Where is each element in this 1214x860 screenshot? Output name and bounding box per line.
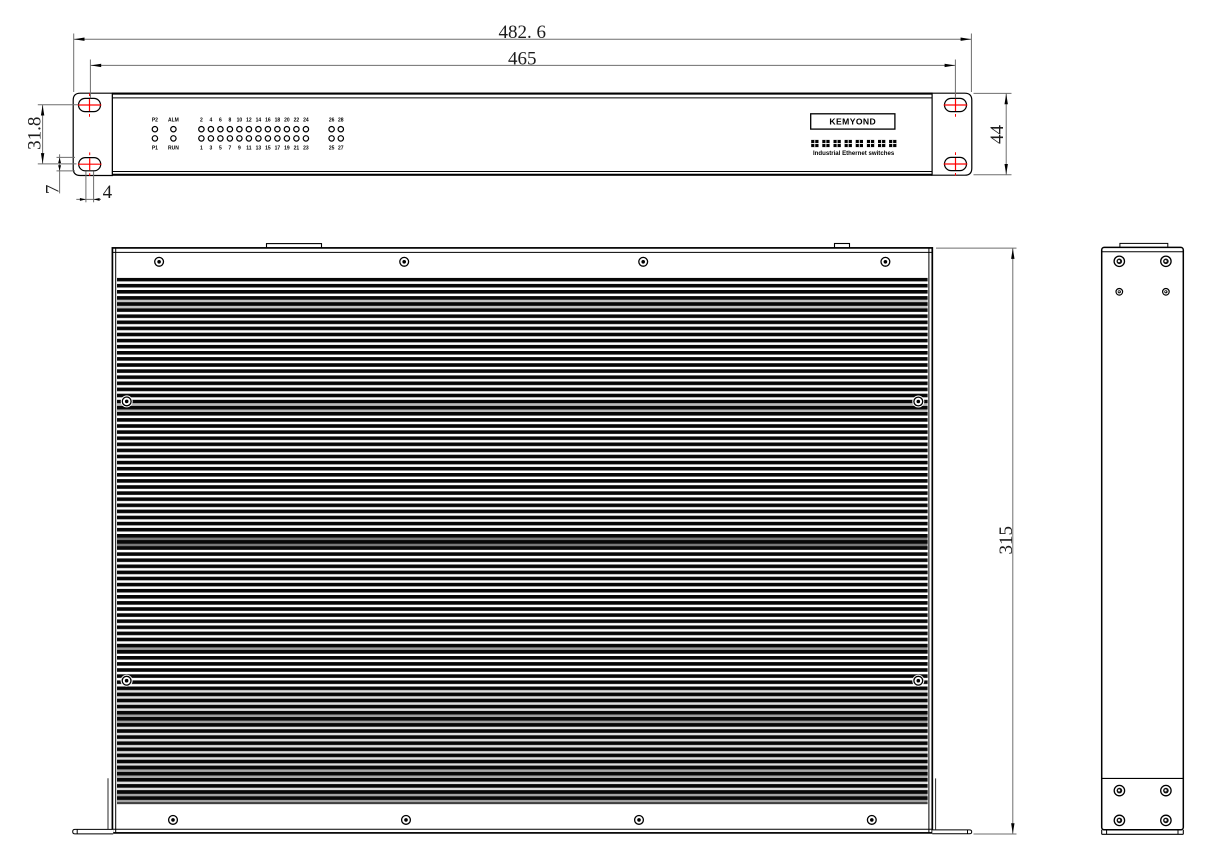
svg-text:4: 4 bbox=[103, 182, 113, 203]
svg-text:24: 24 bbox=[303, 118, 309, 124]
svg-text:315: 315 bbox=[996, 526, 1017, 555]
svg-text:7: 7 bbox=[42, 185, 63, 195]
svg-text:482. 6: 482. 6 bbox=[499, 22, 547, 43]
svg-text:19: 19 bbox=[284, 145, 290, 151]
svg-text:17: 17 bbox=[275, 145, 281, 151]
svg-text:ALM: ALM bbox=[168, 118, 179, 124]
svg-text:25: 25 bbox=[329, 145, 335, 151]
svg-text:21: 21 bbox=[294, 145, 300, 151]
svg-text:23: 23 bbox=[303, 145, 309, 151]
svg-text:20: 20 bbox=[284, 118, 290, 124]
svg-text:27: 27 bbox=[338, 145, 344, 151]
svg-text:22: 22 bbox=[294, 118, 300, 124]
svg-text:4: 4 bbox=[210, 118, 213, 124]
svg-text:KEMYOND: KEMYOND bbox=[829, 117, 876, 127]
svg-text:Industrial Ethernet switches: Industrial Ethernet switches bbox=[813, 150, 895, 157]
svg-text:28: 28 bbox=[338, 118, 344, 124]
svg-text:12: 12 bbox=[246, 118, 252, 124]
svg-text:P1: P1 bbox=[152, 145, 158, 151]
svg-text:3: 3 bbox=[210, 145, 213, 151]
svg-text:31.8: 31.8 bbox=[25, 117, 46, 150]
svg-text:5: 5 bbox=[219, 145, 222, 151]
svg-text:7: 7 bbox=[229, 145, 232, 151]
svg-text:15: 15 bbox=[265, 145, 271, 151]
svg-text:2: 2 bbox=[200, 118, 203, 124]
svg-text:8: 8 bbox=[229, 118, 232, 124]
svg-text:1: 1 bbox=[200, 145, 203, 151]
svg-text:44: 44 bbox=[987, 125, 1008, 145]
svg-text:26: 26 bbox=[329, 118, 335, 124]
svg-text:13: 13 bbox=[256, 145, 262, 151]
svg-text:9: 9 bbox=[238, 145, 241, 151]
svg-text:10: 10 bbox=[237, 118, 243, 124]
svg-text:18: 18 bbox=[275, 118, 281, 124]
svg-text:11: 11 bbox=[246, 145, 252, 151]
svg-text:465: 465 bbox=[508, 48, 537, 69]
svg-text:RUN: RUN bbox=[168, 145, 179, 151]
svg-text:P2: P2 bbox=[152, 118, 158, 124]
svg-text:16: 16 bbox=[265, 118, 271, 124]
svg-text:14: 14 bbox=[256, 118, 262, 124]
svg-text:6: 6 bbox=[219, 118, 222, 124]
